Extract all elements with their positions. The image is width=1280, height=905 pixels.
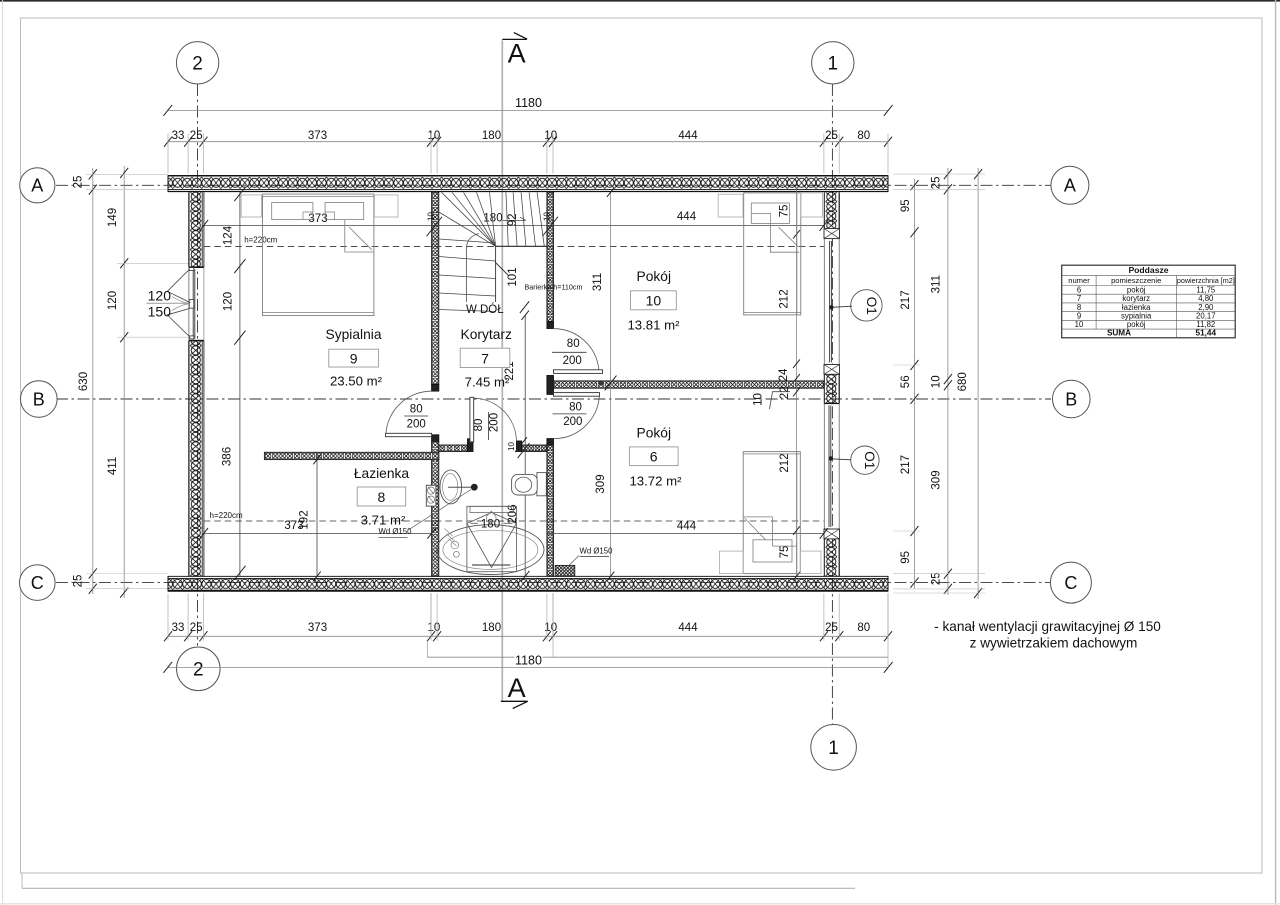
svg-text:200: 200 [563, 416, 582, 428]
svg-text:1180: 1180 [515, 96, 542, 110]
svg-text:150: 150 [148, 304, 172, 320]
svg-text:pomieszczenie: pomieszczenie [1111, 276, 1161, 285]
svg-text:A: A [508, 673, 526, 703]
svg-text:powierzchnia [m2]: powierzchnia [m2] [1177, 276, 1235, 285]
svg-text:1180: 1180 [515, 654, 542, 668]
svg-text:łazienka: łazienka [1122, 303, 1151, 312]
svg-text:h=220cm: h=220cm [244, 236, 277, 245]
svg-text:120: 120 [107, 291, 119, 310]
svg-text:1: 1 [828, 738, 839, 759]
svg-text:A: A [508, 38, 526, 68]
svg-text:373: 373 [308, 622, 327, 634]
svg-text:444: 444 [678, 130, 698, 142]
svg-text:z wywietrzakiem dachowym: z wywietrzakiem dachowym [970, 635, 1138, 650]
svg-text:10: 10 [543, 212, 552, 221]
svg-text:sypialnia: sypialnia [1121, 312, 1152, 321]
svg-text:80: 80 [473, 419, 485, 432]
svg-text:200: 200 [489, 413, 501, 432]
svg-text:80: 80 [857, 622, 870, 634]
svg-text:B: B [1065, 389, 1077, 409]
svg-text:W DÓŁ: W DÓŁ [466, 303, 504, 316]
svg-text:25: 25 [73, 575, 85, 588]
svg-text:8: 8 [1077, 303, 1081, 312]
svg-text:9: 9 [1077, 312, 1081, 321]
svg-text:217: 217 [900, 455, 912, 474]
svg-text:C: C [1064, 573, 1077, 593]
svg-text:10: 10 [646, 293, 662, 309]
svg-text:309: 309 [595, 474, 607, 493]
svg-text:80: 80 [410, 403, 423, 415]
svg-text:Sypialnia: Sypialnia [326, 327, 382, 342]
svg-text:2,90: 2,90 [1198, 303, 1214, 312]
svg-text:Pokój: Pokój [637, 425, 672, 440]
svg-text:80: 80 [567, 338, 580, 350]
svg-text:9: 9 [350, 350, 358, 366]
svg-text:C: C [31, 573, 44, 593]
svg-text:10: 10 [1075, 320, 1084, 329]
svg-text:- kanał wentylacji grawitacyjn: - kanał wentylacji grawitacyjnej Ø 150 [934, 619, 1161, 634]
svg-text:24: 24 [778, 368, 790, 381]
svg-text:444: 444 [678, 622, 698, 634]
svg-text:25: 25 [825, 622, 838, 634]
svg-text:120: 120 [222, 292, 234, 311]
svg-text:120: 120 [148, 288, 172, 304]
svg-text:Korytarz: Korytarz [461, 327, 512, 342]
svg-text:7: 7 [1077, 294, 1081, 303]
svg-text:33: 33 [172, 130, 185, 142]
svg-text:124: 124 [222, 225, 234, 245]
svg-text:200: 200 [407, 418, 426, 430]
svg-text:80: 80 [569, 401, 582, 413]
svg-text:korytarz: korytarz [1122, 294, 1150, 303]
svg-text:149: 149 [107, 208, 119, 227]
svg-text:h=220cm: h=220cm [210, 511, 243, 520]
svg-text:3.71 m²: 3.71 m² [361, 512, 406, 527]
svg-text:8: 8 [378, 489, 386, 505]
svg-text:180: 180 [482, 622, 501, 634]
svg-text:75: 75 [778, 205, 790, 218]
svg-text:101: 101 [507, 267, 519, 286]
svg-text:7.45 m²: 7.45 m² [465, 374, 510, 389]
svg-text:92: 92 [507, 214, 519, 227]
svg-text:B: B [33, 389, 45, 409]
svg-text:Pokój: Pokój [637, 269, 672, 284]
svg-text:20,17: 20,17 [1196, 312, 1216, 321]
svg-text:10: 10 [544, 130, 557, 142]
svg-text:2: 2 [193, 660, 204, 681]
svg-text:25: 25 [825, 130, 838, 142]
svg-text:630: 630 [78, 372, 90, 391]
svg-text:1: 1 [828, 54, 839, 75]
svg-text:80: 80 [857, 130, 870, 142]
svg-text:56: 56 [900, 375, 912, 388]
svg-text:25: 25 [190, 622, 203, 634]
svg-text:25: 25 [190, 130, 203, 142]
svg-text:75: 75 [779, 546, 791, 559]
svg-text:10: 10 [427, 212, 436, 221]
svg-text:Poddasze: Poddasze [1128, 265, 1168, 275]
svg-text:212: 212 [779, 453, 791, 472]
svg-text:7: 7 [481, 350, 489, 366]
svg-text:numer: numer [1068, 276, 1090, 285]
svg-text:10: 10 [507, 442, 516, 451]
svg-text:Wd Ø150: Wd Ø150 [379, 527, 413, 536]
svg-text:4,80: 4,80 [1198, 294, 1214, 303]
svg-text:SUMA: SUMA [1107, 329, 1131, 338]
svg-text:A: A [31, 176, 43, 196]
svg-text:680: 680 [957, 372, 969, 391]
svg-text:Łazienka: Łazienka [354, 466, 410, 481]
svg-text:444: 444 [677, 521, 697, 533]
svg-text:180: 180 [481, 519, 500, 531]
svg-text:6: 6 [650, 449, 658, 465]
svg-text:192: 192 [298, 510, 310, 529]
svg-text:212: 212 [778, 289, 790, 308]
svg-text:11,75: 11,75 [1196, 285, 1216, 294]
svg-text:444: 444 [677, 211, 697, 223]
svg-text:pokój: pokój [1127, 285, 1146, 294]
svg-text:411: 411 [107, 457, 119, 475]
svg-text:25: 25 [73, 176, 85, 189]
svg-text:10: 10 [930, 375, 942, 388]
svg-text:311: 311 [930, 275, 942, 293]
svg-text:180: 180 [482, 130, 501, 142]
svg-text:386: 386 [222, 447, 234, 466]
svg-text:95: 95 [900, 199, 912, 212]
svg-text:25: 25 [930, 572, 942, 585]
svg-text:A: A [1064, 176, 1076, 196]
svg-text:10: 10 [428, 130, 441, 142]
svg-text:200: 200 [563, 355, 582, 367]
svg-text:2: 2 [192, 54, 203, 75]
svg-text:23.50 m²: 23.50 m² [330, 374, 383, 389]
svg-text:13.81 m²: 13.81 m² [627, 318, 680, 333]
svg-text:Barierka h=110cm: Barierka h=110cm [525, 282, 583, 291]
svg-text:10: 10 [428, 622, 441, 634]
svg-text:O1: O1 [864, 297, 879, 315]
svg-text:33: 33 [172, 622, 185, 634]
svg-text:311: 311 [592, 273, 604, 291]
svg-text:51,44: 51,44 [1196, 329, 1217, 338]
svg-text:206: 206 [507, 504, 519, 523]
svg-text:25: 25 [930, 177, 942, 190]
svg-text:309: 309 [930, 470, 942, 489]
svg-text:373: 373 [308, 130, 327, 142]
svg-text:95: 95 [900, 551, 912, 564]
svg-text:6: 6 [1077, 285, 1081, 294]
svg-text:Wd Ø150: Wd Ø150 [580, 546, 614, 555]
svg-text:13.72 m²: 13.72 m² [629, 473, 682, 488]
svg-text:10: 10 [753, 393, 765, 406]
svg-text:O1: O1 [862, 451, 877, 469]
svg-text:10: 10 [544, 622, 557, 634]
svg-text:22: 22 [779, 386, 791, 399]
svg-text:217: 217 [900, 290, 912, 309]
